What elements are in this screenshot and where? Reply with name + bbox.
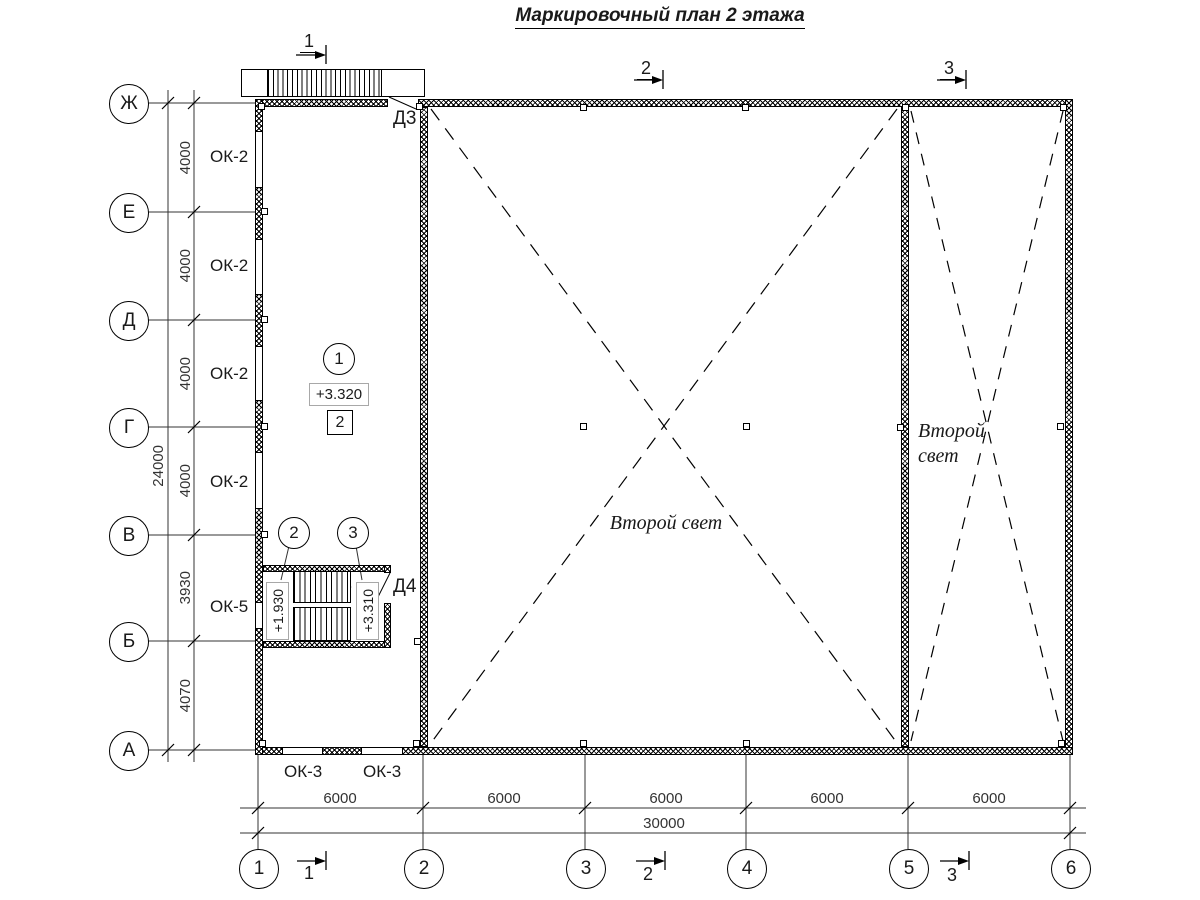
stair-marker-circle-2: 2: [278, 517, 310, 549]
window-label-ok5: ОК-5: [210, 597, 248, 617]
axis-bubble-row-b: Б: [109, 622, 149, 662]
floor-plan-canvas: Маркировочный план 2 этажа: [0, 0, 1200, 900]
axis-bubble-row-g: Г: [109, 408, 149, 448]
section-number-top-3: 3: [940, 58, 958, 80]
void-label-hall: Второй свет: [596, 512, 736, 535]
window-ok2-2: [255, 240, 263, 294]
door-label-d3: Д3: [393, 108, 416, 130]
section-number-bottom-3: 3: [943, 865, 961, 886]
column-marker: [902, 104, 909, 111]
door-label-d4: Д4: [393, 576, 416, 598]
window-ok2-4: [255, 453, 263, 508]
section-number-bottom-2: 2: [639, 864, 657, 885]
dim-h-1-2: 6000: [310, 790, 370, 806]
stair-flight-upper: [293, 571, 351, 603]
dimension-ticks: [162, 97, 1076, 839]
void-label-right-line2: свет: [918, 445, 959, 468]
window-label-ok2-3: ОК-2: [210, 364, 248, 384]
column-marker: [1058, 740, 1065, 747]
column-marker: [580, 740, 587, 747]
axis-bubble-col-2: 2: [404, 849, 444, 889]
void-cross-hall: [431, 109, 897, 743]
wall-left-pier5: [255, 508, 263, 603]
dim-v-d-g: 4000: [175, 339, 195, 409]
axis-bubble-col-3: 3: [566, 849, 606, 889]
window-ok2-3: [255, 347, 263, 400]
dim-h-4-5: 6000: [797, 790, 857, 806]
dim-v-g-v: 4000: [175, 446, 195, 516]
axis-bubble-row-d: Д: [109, 301, 149, 341]
stair-flight-lower: [293, 607, 351, 641]
column-marker: [261, 423, 268, 430]
stairwell-wall-right-corner: [384, 565, 391, 573]
window-label-ok3-1: ОК-3: [284, 762, 322, 782]
dim-h-2-3: 6000: [474, 790, 534, 806]
column-marker: [261, 208, 268, 215]
dim-v-e-d: 4000: [175, 231, 195, 301]
section-number-top-1: 1: [300, 31, 318, 53]
window-label-ok2-4: ОК-2: [210, 472, 248, 492]
wall-bottom-main: [402, 747, 1073, 755]
section-number-bottom-1: 1: [300, 863, 318, 884]
node-marker-square-2: 2: [327, 410, 353, 435]
window-label-ok3-2: ОК-3: [363, 762, 401, 782]
door-swing-lines: [378, 97, 416, 597]
level-mark-stair-top: +3.310: [356, 582, 379, 640]
node-marker-circle-1: 1: [323, 343, 355, 375]
wall-top-left-of-door: [255, 99, 388, 107]
dim-v-v-b: 3930: [175, 553, 195, 623]
axis-bubble-col-1: 1: [239, 849, 279, 889]
axis-bubble-col-6: 6: [1051, 849, 1091, 889]
axis-leader-lines: [147, 103, 1070, 849]
section-number-top-2: 2: [637, 58, 655, 80]
column-marker: [416, 103, 423, 110]
stair-marker-circle-3: 3: [337, 517, 369, 549]
wall-bottom-seg2: [322, 747, 362, 755]
exterior-stair-treads: [267, 69, 382, 97]
void-label-right-line1: Второй: [918, 420, 985, 443]
column-marker: [1057, 423, 1064, 430]
column-marker: [259, 740, 266, 747]
column-marker: [261, 531, 268, 538]
level-mark-stair-mid: +1.930: [266, 582, 289, 640]
column-marker: [1060, 104, 1067, 111]
column-marker: [580, 423, 587, 430]
column-marker: [261, 316, 268, 323]
axis-bubble-row-v: В: [109, 516, 149, 556]
window-ok3-2: [362, 747, 402, 755]
stairwell-wall-bottom: [263, 641, 391, 648]
axis-bubble-row-e: Е: [109, 193, 149, 233]
dim-h-total: 30000: [634, 815, 694, 831]
column-marker: [414, 638, 421, 645]
axis-bubble-col-4: 4: [727, 849, 767, 889]
dim-v-b-a: 4070: [175, 661, 195, 731]
column-marker: [897, 424, 904, 431]
window-label-ok2-1: ОК-2: [210, 147, 248, 167]
wall-left-pier6: [255, 628, 263, 755]
dim-v-zh-e: 4000: [175, 123, 195, 193]
page-title: Маркировочный план 2 этажа: [455, 5, 865, 27]
dim-v-total: 24000: [148, 431, 168, 501]
column-marker: [742, 104, 749, 111]
window-ok5: [255, 603, 263, 628]
stairwell-wall-right-lower: [384, 603, 391, 648]
dim-h-5-6: 6000: [959, 790, 1019, 806]
column-marker: [743, 423, 750, 430]
window-ok3-1: [283, 747, 322, 755]
level-mark-floor: +3.320: [309, 383, 369, 406]
column-marker: [258, 103, 265, 110]
axis-bubble-col-5: 5: [889, 849, 929, 889]
axis-bubble-row-zh: Ж: [109, 84, 149, 124]
wall-right: [1065, 99, 1073, 755]
column-marker: [743, 740, 750, 747]
window-label-ok2-2: ОК-2: [210, 256, 248, 276]
axis-bubble-row-a: А: [109, 731, 149, 771]
wall-axis2: [420, 107, 428, 747]
window-ok2-1: [255, 132, 263, 187]
column-marker: [580, 104, 587, 111]
dim-h-3-4: 6000: [636, 790, 696, 806]
column-marker: [413, 740, 420, 747]
